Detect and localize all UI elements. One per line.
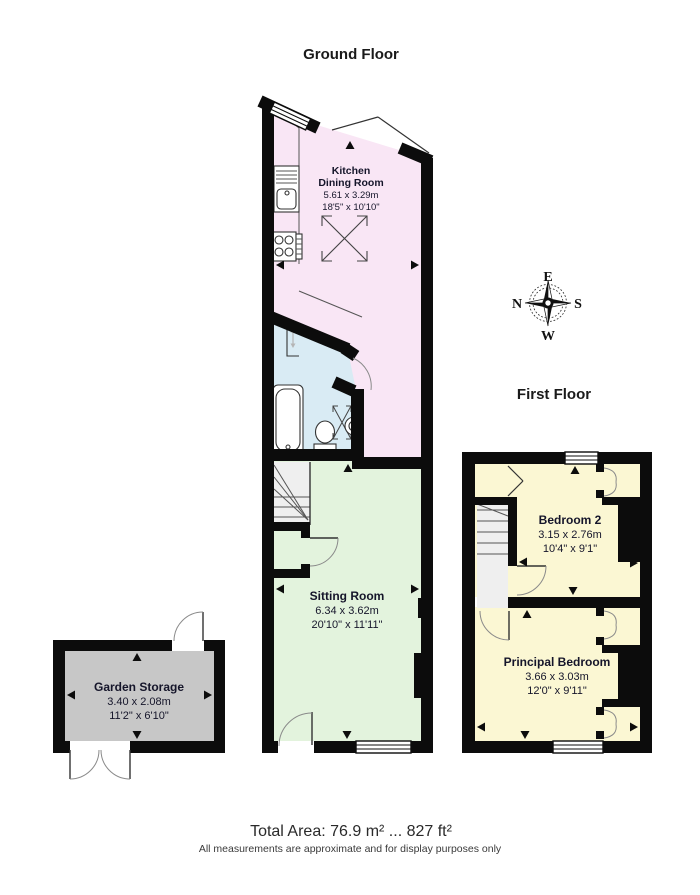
compass-east-label: E [543, 270, 552, 285]
principal-bedroom-dim-metric: 3.66 x 3.03m [525, 671, 589, 683]
bedroom2-window [565, 452, 598, 464]
storage-dim-metric: 3.40 x 2.08m [107, 696, 171, 708]
bathroom-door-post-upper [344, 348, 356, 356]
first-floor-title: First Floor [517, 386, 591, 403]
sitting-room-label: Sitting Room [310, 589, 385, 603]
bedroom2-label: Bedroom 2 [539, 513, 602, 527]
kitchen-dim-metric: 5.61 x 3.29m [324, 190, 379, 201]
bathtub [273, 385, 303, 455]
kitchen-label-1: Kitchen [332, 165, 371, 177]
compass-west-label: W [541, 329, 555, 344]
storage-double-doors [70, 750, 130, 779]
bathroom-door-post-lower [334, 382, 354, 391]
ground-floor-plan: Kitchen Dining Room 5.61 x 3.29m 18'5" x… [260, 101, 433, 753]
compass-north-label: N [512, 297, 522, 312]
compass-south-label: S [574, 297, 582, 312]
bedroom2-dim-imperial: 10'4" x 9'1" [543, 543, 597, 555]
principal-bedroom-dim-imperial: 12'0" x 9'11" [527, 685, 587, 697]
storage-top-door [174, 612, 203, 641]
storage-label: Garden Storage [94, 680, 184, 694]
floorplan-page: Ground Floor First Floor [0, 0, 700, 895]
garden-storage-plan: Garden Storage 3.40 x 2.08m 11'2" x 6'10… [53, 612, 225, 779]
compass-star-icon [525, 280, 571, 326]
sitting-room-dim-imperial: 20'10" x 11'11" [312, 619, 383, 631]
bedroom2-dim-metric: 3.15 x 2.76m [538, 529, 602, 541]
first-floor-plan: Bedroom 2 3.15 x 2.76m 10'4" x 9'1" Prin… [462, 452, 652, 753]
kitchen-sink-unit [274, 166, 299, 212]
principal-bedroom-label: Principal Bedroom [504, 655, 611, 669]
kitchen-label-2: Dining Room [318, 177, 383, 189]
disclaimer-text: All measurements are approximate and for… [199, 843, 502, 855]
storage-top-door-gap [172, 640, 204, 651]
sitting-room-dim-metric: 6.34 x 3.62m [315, 605, 379, 617]
kitchen-hob [272, 232, 302, 261]
sitting-room-window [356, 741, 411, 753]
floorplan-drawing: Ground Floor First Floor [0, 0, 700, 895]
compass-rose: E S W N [512, 270, 582, 344]
principal-bedroom-window [553, 741, 603, 753]
ground-floor-title: Ground Floor [303, 46, 399, 63]
kitchen-dim-imperial: 18'5" x 10'10" [322, 202, 379, 213]
storage-bottom-door-gap [70, 741, 130, 753]
storage-dim-imperial: 11'2" x 6'10" [109, 710, 169, 722]
total-area-text: Total Area: 76.9 m² ... 827 ft² [250, 823, 453, 840]
